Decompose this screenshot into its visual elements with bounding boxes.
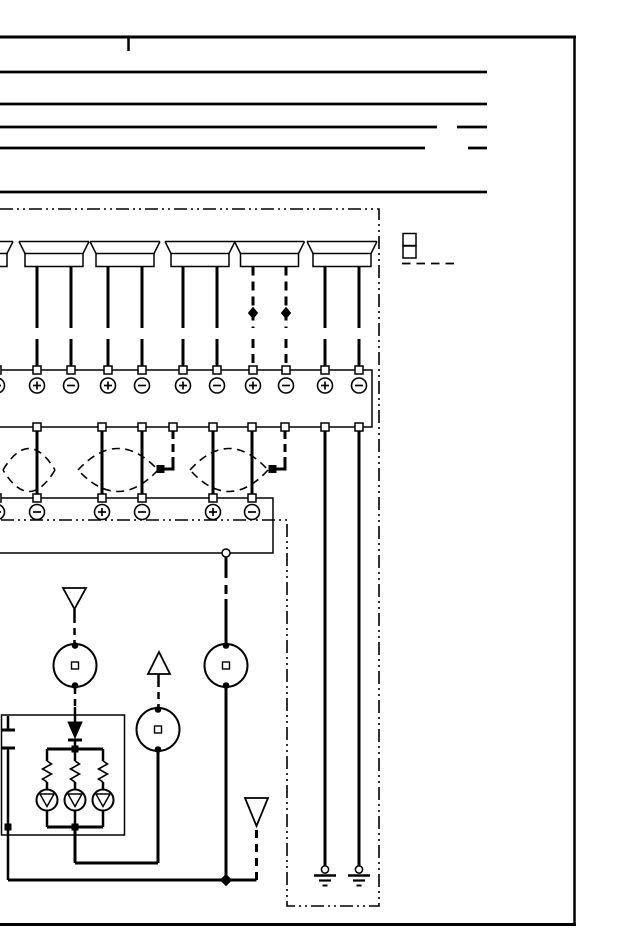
speaker-4	[165, 242, 235, 367]
output-pin-icon	[222, 549, 230, 557]
lamp-icon	[37, 790, 58, 811]
shield-icon	[190, 449, 268, 492]
speaker-5	[235, 242, 305, 367]
pin-square-icon	[209, 423, 217, 431]
upper-terminal-strip	[0, 366, 372, 431]
resistor-icon	[43, 761, 52, 782]
internal-wiring	[1, 557, 257, 886]
scanned-page	[0, 0, 640, 950]
offpage-arrows	[63, 588, 268, 826]
lower-terminal-strip	[0, 494, 273, 557]
pin-square-icon	[98, 423, 106, 431]
inline-connector-block	[402, 234, 459, 264]
connector-cell-icon	[403, 234, 416, 246]
pin-square-icon	[169, 423, 177, 431]
pin-square-icon	[33, 423, 41, 431]
ground-icon	[348, 866, 370, 886]
inline-connectors	[54, 643, 248, 753]
speaker-1	[0, 242, 13, 267]
splice-diamond-icon	[249, 308, 258, 319]
header-rules	[0, 72, 487, 192]
lamp-branch	[65, 749, 86, 827]
arrow-2-up-icon	[148, 652, 170, 674]
shield-icon	[78, 449, 158, 492]
resistor-icon	[99, 761, 108, 782]
pair-wires	[37, 431, 252, 495]
pin-square-icon	[248, 423, 256, 431]
inline-connector-icon	[54, 643, 97, 689]
speaker-row	[0, 242, 377, 367]
pin-square-icon	[321, 423, 329, 431]
arrow-3-down-icon	[245, 798, 268, 826]
pin-square-icon	[355, 423, 363, 431]
splice-diamond-icon	[282, 308, 291, 319]
pin-square-icon	[138, 423, 146, 431]
lamp-branch	[93, 749, 114, 827]
arrow-1-down-icon	[63, 588, 86, 609]
pin-square-icon	[281, 423, 289, 431]
lamp-icon	[65, 790, 86, 811]
shield-drain-wires	[157, 431, 285, 473]
lamp-branch	[37, 749, 58, 827]
speaker-lead	[282, 267, 291, 367]
ground-icon	[314, 866, 336, 886]
wiring-diagram	[0, 0, 640, 950]
speaker-lead	[249, 267, 258, 367]
speaker-3	[90, 242, 160, 367]
inline-connector-icon	[137, 707, 180, 753]
connector-cell-icon	[403, 246, 416, 258]
shield-icon	[3, 449, 55, 492]
shield-drain-wire	[157, 431, 173, 473]
shields	[3, 449, 268, 492]
lamp-icon	[93, 790, 114, 811]
illumination-lamp-unit	[2, 715, 125, 835]
page-frame	[0, 36, 576, 925]
ground-wires	[325, 431, 359, 866]
speaker-2	[19, 242, 89, 367]
inline-connector-icon	[205, 643, 248, 689]
shield-drain-wire	[269, 431, 285, 473]
resistor-icon	[71, 761, 80, 782]
speaker-6	[307, 242, 377, 367]
grounds	[314, 866, 370, 886]
